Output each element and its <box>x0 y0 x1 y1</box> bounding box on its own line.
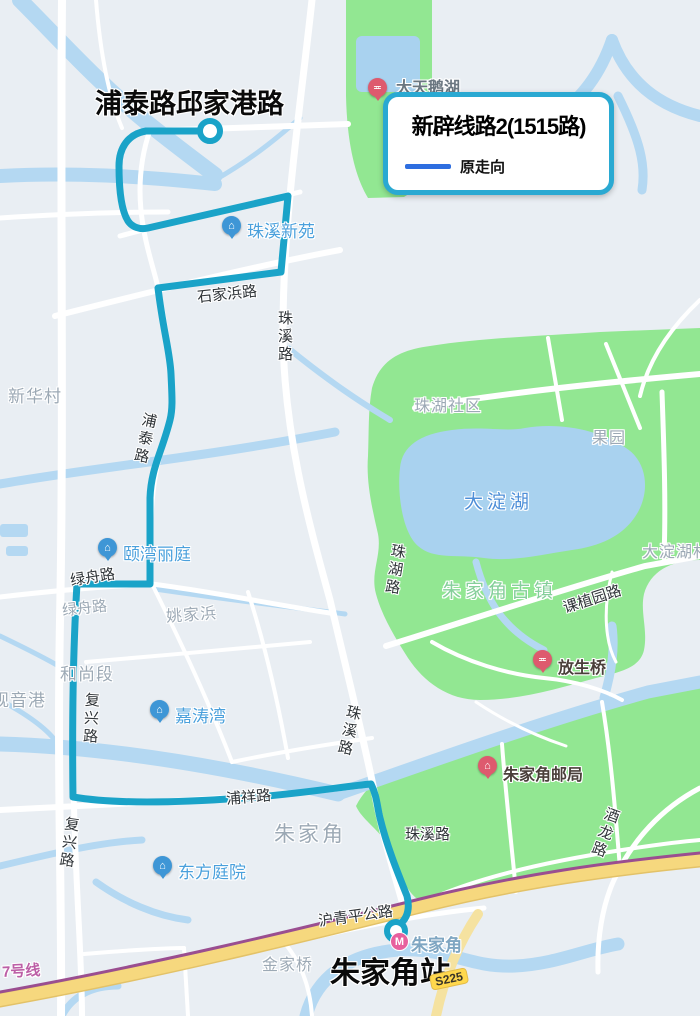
area-label-guanyingang: 观音港 <box>0 686 46 711</box>
legend-item-original-route: 原走向 <box>405 156 609 177</box>
poi-pin-zhuxixinyuan[interactable]: ⌂ <box>222 216 241 235</box>
poi-pin-zhujiajiao-post[interactable]: ⌂ <box>478 756 497 775</box>
poi-pin-fangshengqiao[interactable]: ≖ <box>533 650 552 669</box>
poi-label-dongfangtingyuan[interactable]: 东方庭院 <box>178 858 246 883</box>
bridge-icon: ≖ <box>538 653 547 666</box>
rail-line-label: 7号线 <box>1 959 40 982</box>
poi-label-zhujiajiao-post[interactable]: 朱家角邮局 <box>503 761 583 785</box>
building-icon: ⌂ <box>484 760 491 772</box>
poi-label-fangshengqiao[interactable]: 放生桥 <box>558 654 606 678</box>
map-canvas[interactable]: 浦泰路邱家港路 朱家角站 石家浜路 珠溪路 浦泰路 绿舟路 绿舟路 复兴路 复兴… <box>0 0 700 1016</box>
area-label-xinhuacun: 新华村 <box>8 382 62 407</box>
building-icon: ⌂ <box>228 220 235 232</box>
road-label-fuxing-upper: 复兴路 <box>79 691 103 746</box>
poi-label-yiwanliting[interactable]: 颐湾丽庭 <box>123 540 191 565</box>
legend-title: 新辟线路2(1515路) <box>388 109 609 141</box>
area-label-heshangduan: 和尚段 <box>60 660 114 685</box>
poi-label-zhuxixinyuan[interactable]: 珠溪新苑 <box>247 217 315 242</box>
area-label-jinjiaqiao: 金家桥 <box>262 951 313 975</box>
poi-label-jiataowan[interactable]: 嘉涛湾 <box>175 702 226 727</box>
legend-box: 新辟线路2(1515路) 原走向 <box>383 92 614 195</box>
bus-route-line <box>73 121 409 940</box>
poi-pin-dongfangtingyuan[interactable]: ⌂ <box>153 856 172 875</box>
route-start-label: 浦泰路邱家港路 <box>95 82 284 121</box>
poi-pin-jiataowan[interactable]: ⌂ <box>150 700 169 719</box>
road-label-zhuxi-north: 珠溪路 <box>274 310 295 364</box>
area-label-zhujiajiao-guzhen: 朱家角古镇 <box>442 576 557 603</box>
area-label-zhuhushequ: 珠湖社区 <box>414 392 482 416</box>
poi-pin-swan-lake[interactable]: ≖ <box>368 78 387 97</box>
metro-station-name: 朱家角 <box>411 931 462 956</box>
route-line-swatch <box>405 164 451 169</box>
bridge-icon: ≖ <box>373 81 382 94</box>
building-icon: ⌂ <box>159 860 166 872</box>
road-label-puxiang: 浦祥路 <box>225 784 272 809</box>
lake-label-dadianhu: 大淀湖 <box>464 487 533 514</box>
poi-pin-yiwanliting[interactable]: ⌂ <box>98 538 117 557</box>
building-icon: ⌂ <box>104 542 111 554</box>
area-label-zhujiajiao: 朱家角 <box>274 818 346 848</box>
area-label-yaojiabang: 姚家浜 <box>165 599 218 627</box>
area-label-dadianhucun: 大淀湖村 <box>642 538 700 562</box>
building-icon: ⌂ <box>156 704 163 716</box>
route-start-marker <box>200 121 220 141</box>
road-label-zhuxi-south: 珠溪路 <box>405 823 450 844</box>
area-label-guoyuan: 果园 <box>592 424 626 448</box>
legend-item-label: 原走向 <box>460 156 505 177</box>
